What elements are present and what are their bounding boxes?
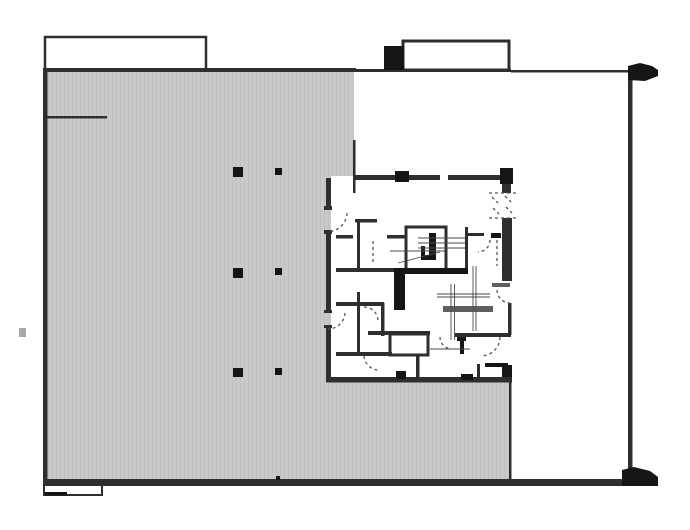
outer-top-wall-right — [511, 70, 630, 73]
fixture-tee-stem — [460, 341, 464, 354]
core-west-wall-c — [326, 327, 331, 378]
elevator-lobby-outline — [390, 334, 428, 355]
door-stub-b — [387, 235, 405, 239]
roof-canopy-outline-right — [403, 41, 509, 70]
structural-column — [233, 368, 243, 377]
shaft-hatch — [505, 196, 511, 202]
west-room-divider-upper — [336, 302, 384, 306]
door-swing — [481, 337, 500, 356]
corner-caps — [622, 63, 658, 486]
core-east-wall-lower — [508, 303, 512, 335]
core-south-column — [396, 371, 406, 379]
core-east-threshold — [492, 283, 510, 287]
bottom-stoop-thick-edge — [45, 492, 67, 496]
west-room-divider-lower — [336, 352, 392, 356]
deck-edge-wall-south — [509, 380, 512, 480]
top-parapet-block — [384, 46, 404, 70]
shaded-floor-area — [47, 72, 510, 480]
door-jamb-tick — [324, 310, 332, 313]
bottom-wall-column-tick — [276, 476, 280, 480]
door-swing — [364, 307, 378, 320]
door-swing — [497, 290, 510, 303]
ne-room-partition — [467, 233, 484, 236]
outer-left-wall — [43, 70, 48, 483]
core-northeast-column — [500, 168, 513, 184]
left-margin-mark — [19, 328, 26, 337]
washroom-south-wall-west — [368, 331, 430, 335]
deck-edge-wall-north — [353, 140, 356, 193]
ne-room-stub — [491, 233, 501, 238]
structural-column — [275, 268, 282, 275]
room-wall-vertical-a — [357, 221, 360, 270]
floor-plan-drawing — [0, 0, 690, 530]
interior-partition-topleft — [45, 116, 107, 119]
outer-bottom-wall — [43, 479, 636, 486]
corner-cap-bottom-right — [622, 467, 658, 486]
west-room-wall-vertical — [381, 303, 385, 336]
room-wall-vertical-b — [357, 292, 360, 355]
shaft-wall-block-west — [394, 268, 405, 310]
fixture-tee-cap — [457, 337, 466, 341]
shaft-hatch — [506, 207, 512, 213]
south-room-stub — [485, 363, 508, 367]
structural-column — [233, 268, 243, 278]
outer-top-wall-left — [43, 68, 356, 72]
core-west-wall-b — [326, 233, 331, 312]
core-east-wall-mid — [502, 218, 512, 281]
lobby-wall-vertical — [416, 355, 420, 379]
outer-top-wall-mid — [356, 69, 511, 72]
door-jamb-tick — [324, 206, 332, 210]
structural-column — [275, 168, 282, 175]
roof-canopy-outline-left — [45, 37, 206, 70]
core-north-wall-east — [448, 175, 502, 180]
door-jamb-tick — [324, 325, 332, 328]
structural-column — [275, 368, 282, 375]
door-swing — [440, 337, 452, 349]
core-north-column — [395, 171, 409, 182]
washroom-south-wall-east — [455, 333, 511, 337]
shaft-wall-block-south — [405, 268, 468, 274]
deck-area — [47, 72, 510, 480]
shaft-hatch — [492, 197, 498, 203]
floor-plan-page — [0, 0, 690, 530]
core-east-wall-upper — [502, 184, 511, 193]
door-swing — [478, 240, 490, 252]
door-swing — [364, 356, 379, 370]
core-south-stub — [461, 374, 473, 380]
door-stub-a — [336, 235, 353, 239]
corner-cap-top-right — [628, 63, 658, 81]
stair-shaft-outline — [406, 227, 446, 271]
south-room-wall — [477, 364, 480, 380]
structural-column — [233, 167, 243, 177]
shaft-hatch — [493, 208, 499, 214]
outer-right-wall — [628, 72, 633, 472]
washroom-counter — [443, 306, 493, 312]
core-west-wall-a — [326, 178, 331, 210]
